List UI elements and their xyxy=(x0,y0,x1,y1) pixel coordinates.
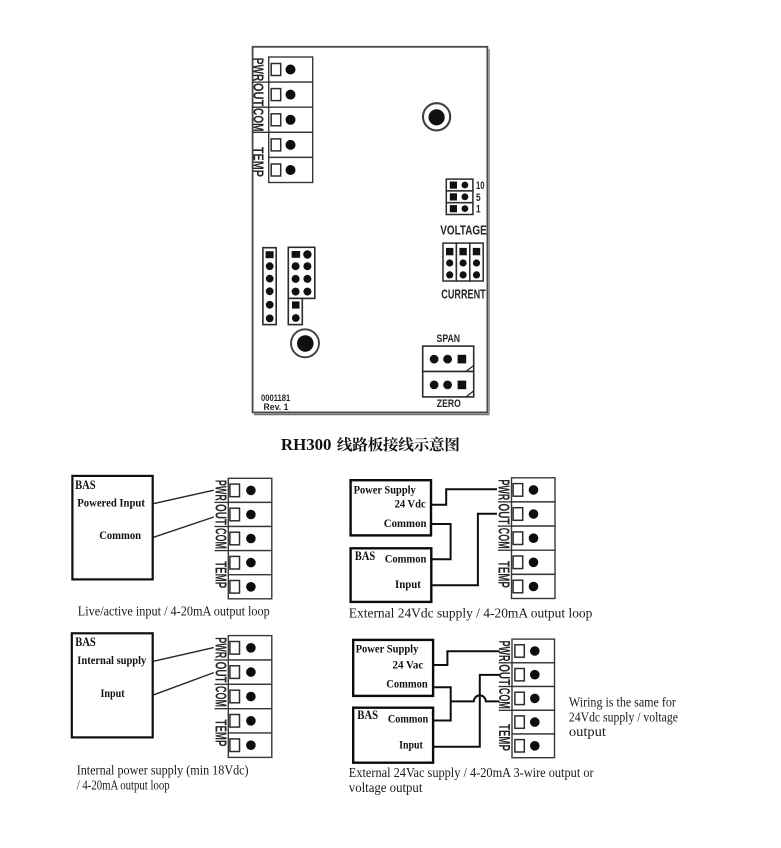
svg-text:Common: Common xyxy=(386,677,428,691)
svg-text:RH300: RH300 xyxy=(281,435,332,454)
svg-text:Live/active input / 4-20mA out: Live/active input / 4-20mA output loop xyxy=(78,604,270,619)
svg-text:Internal power supply (min 18V: Internal power supply (min 18Vdc) xyxy=(77,762,249,777)
svg-text:COM: COM xyxy=(495,688,512,709)
svg-text:OUT: OUT xyxy=(211,504,228,525)
svg-text:CURRENT: CURRENT xyxy=(441,286,485,301)
svg-text:Common: Common xyxy=(99,528,141,542)
svg-text:voltage output: voltage output xyxy=(349,780,423,795)
svg-text:TEMP: TEMP xyxy=(495,561,512,588)
svg-text:External 24Vac supply / 4-20mA: External 24Vac supply / 4-20mA 3-wire ou… xyxy=(349,765,594,780)
svg-text:Common: Common xyxy=(388,712,429,726)
svg-text:10: 10 xyxy=(476,180,485,192)
svg-text:SPAN: SPAN xyxy=(437,333,461,345)
svg-text:PWR: PWR xyxy=(495,641,512,662)
svg-text:Powered Input: Powered Input xyxy=(77,496,145,510)
svg-text:OUT: OUT xyxy=(495,664,512,685)
svg-text:External 24Vdc supply / 4-20mA: External 24Vdc supply / 4-20mA output lo… xyxy=(349,606,593,621)
svg-text:24 Vdc: 24 Vdc xyxy=(395,496,426,510)
svg-text:Internal supply: Internal supply xyxy=(77,653,146,667)
svg-text:Input: Input xyxy=(101,686,125,700)
svg-text:OUT: OUT xyxy=(250,83,267,107)
svg-text:COM: COM xyxy=(495,528,512,549)
svg-text:Wiring is the same for: Wiring is the same for xyxy=(569,695,677,710)
svg-text:BAS: BAS xyxy=(357,708,378,722)
svg-text:COM: COM xyxy=(211,528,228,549)
svg-text:TEMP: TEMP xyxy=(211,720,228,747)
svg-text:Power Supply: Power Supply xyxy=(354,483,416,497)
svg-text:BAS: BAS xyxy=(75,478,96,492)
svg-text:PWR: PWR xyxy=(211,480,228,501)
svg-text:Input: Input xyxy=(399,738,423,752)
svg-text:Input: Input xyxy=(395,577,421,591)
svg-text:Power Supply: Power Supply xyxy=(356,642,419,656)
svg-text:Common: Common xyxy=(384,516,427,530)
svg-text:OUT: OUT xyxy=(495,504,512,525)
svg-text:BAS: BAS xyxy=(355,549,375,563)
svg-text:COM: COM xyxy=(250,108,267,132)
svg-text:PWR: PWR xyxy=(211,637,228,658)
svg-text:Rev. 1: Rev. 1 xyxy=(264,402,289,413)
svg-text:ZERO: ZERO xyxy=(437,398,461,410)
svg-text:Common: Common xyxy=(385,551,427,565)
svg-text:TEMP: TEMP xyxy=(211,561,228,588)
svg-text:OUT: OUT xyxy=(211,662,228,683)
svg-text:PWR: PWR xyxy=(250,58,267,82)
svg-text:BAS: BAS xyxy=(75,635,96,649)
svg-text:TEMP: TEMP xyxy=(495,724,512,751)
svg-text:output: output xyxy=(569,724,606,739)
svg-text:PWR: PWR xyxy=(495,479,512,500)
svg-text:24Vdc supply / voltage: 24Vdc supply / voltage xyxy=(569,710,678,725)
svg-text:TEMP: TEMP xyxy=(250,147,267,177)
svg-text:COM: COM xyxy=(211,686,228,707)
svg-text:5: 5 xyxy=(476,192,481,204)
svg-text:/ 4-20mA output loop: / 4-20mA output loop xyxy=(77,777,170,792)
svg-text:1: 1 xyxy=(476,204,481,216)
svg-text:VOLTAGE: VOLTAGE xyxy=(440,223,487,238)
svg-text:24 Vac: 24 Vac xyxy=(393,658,424,672)
